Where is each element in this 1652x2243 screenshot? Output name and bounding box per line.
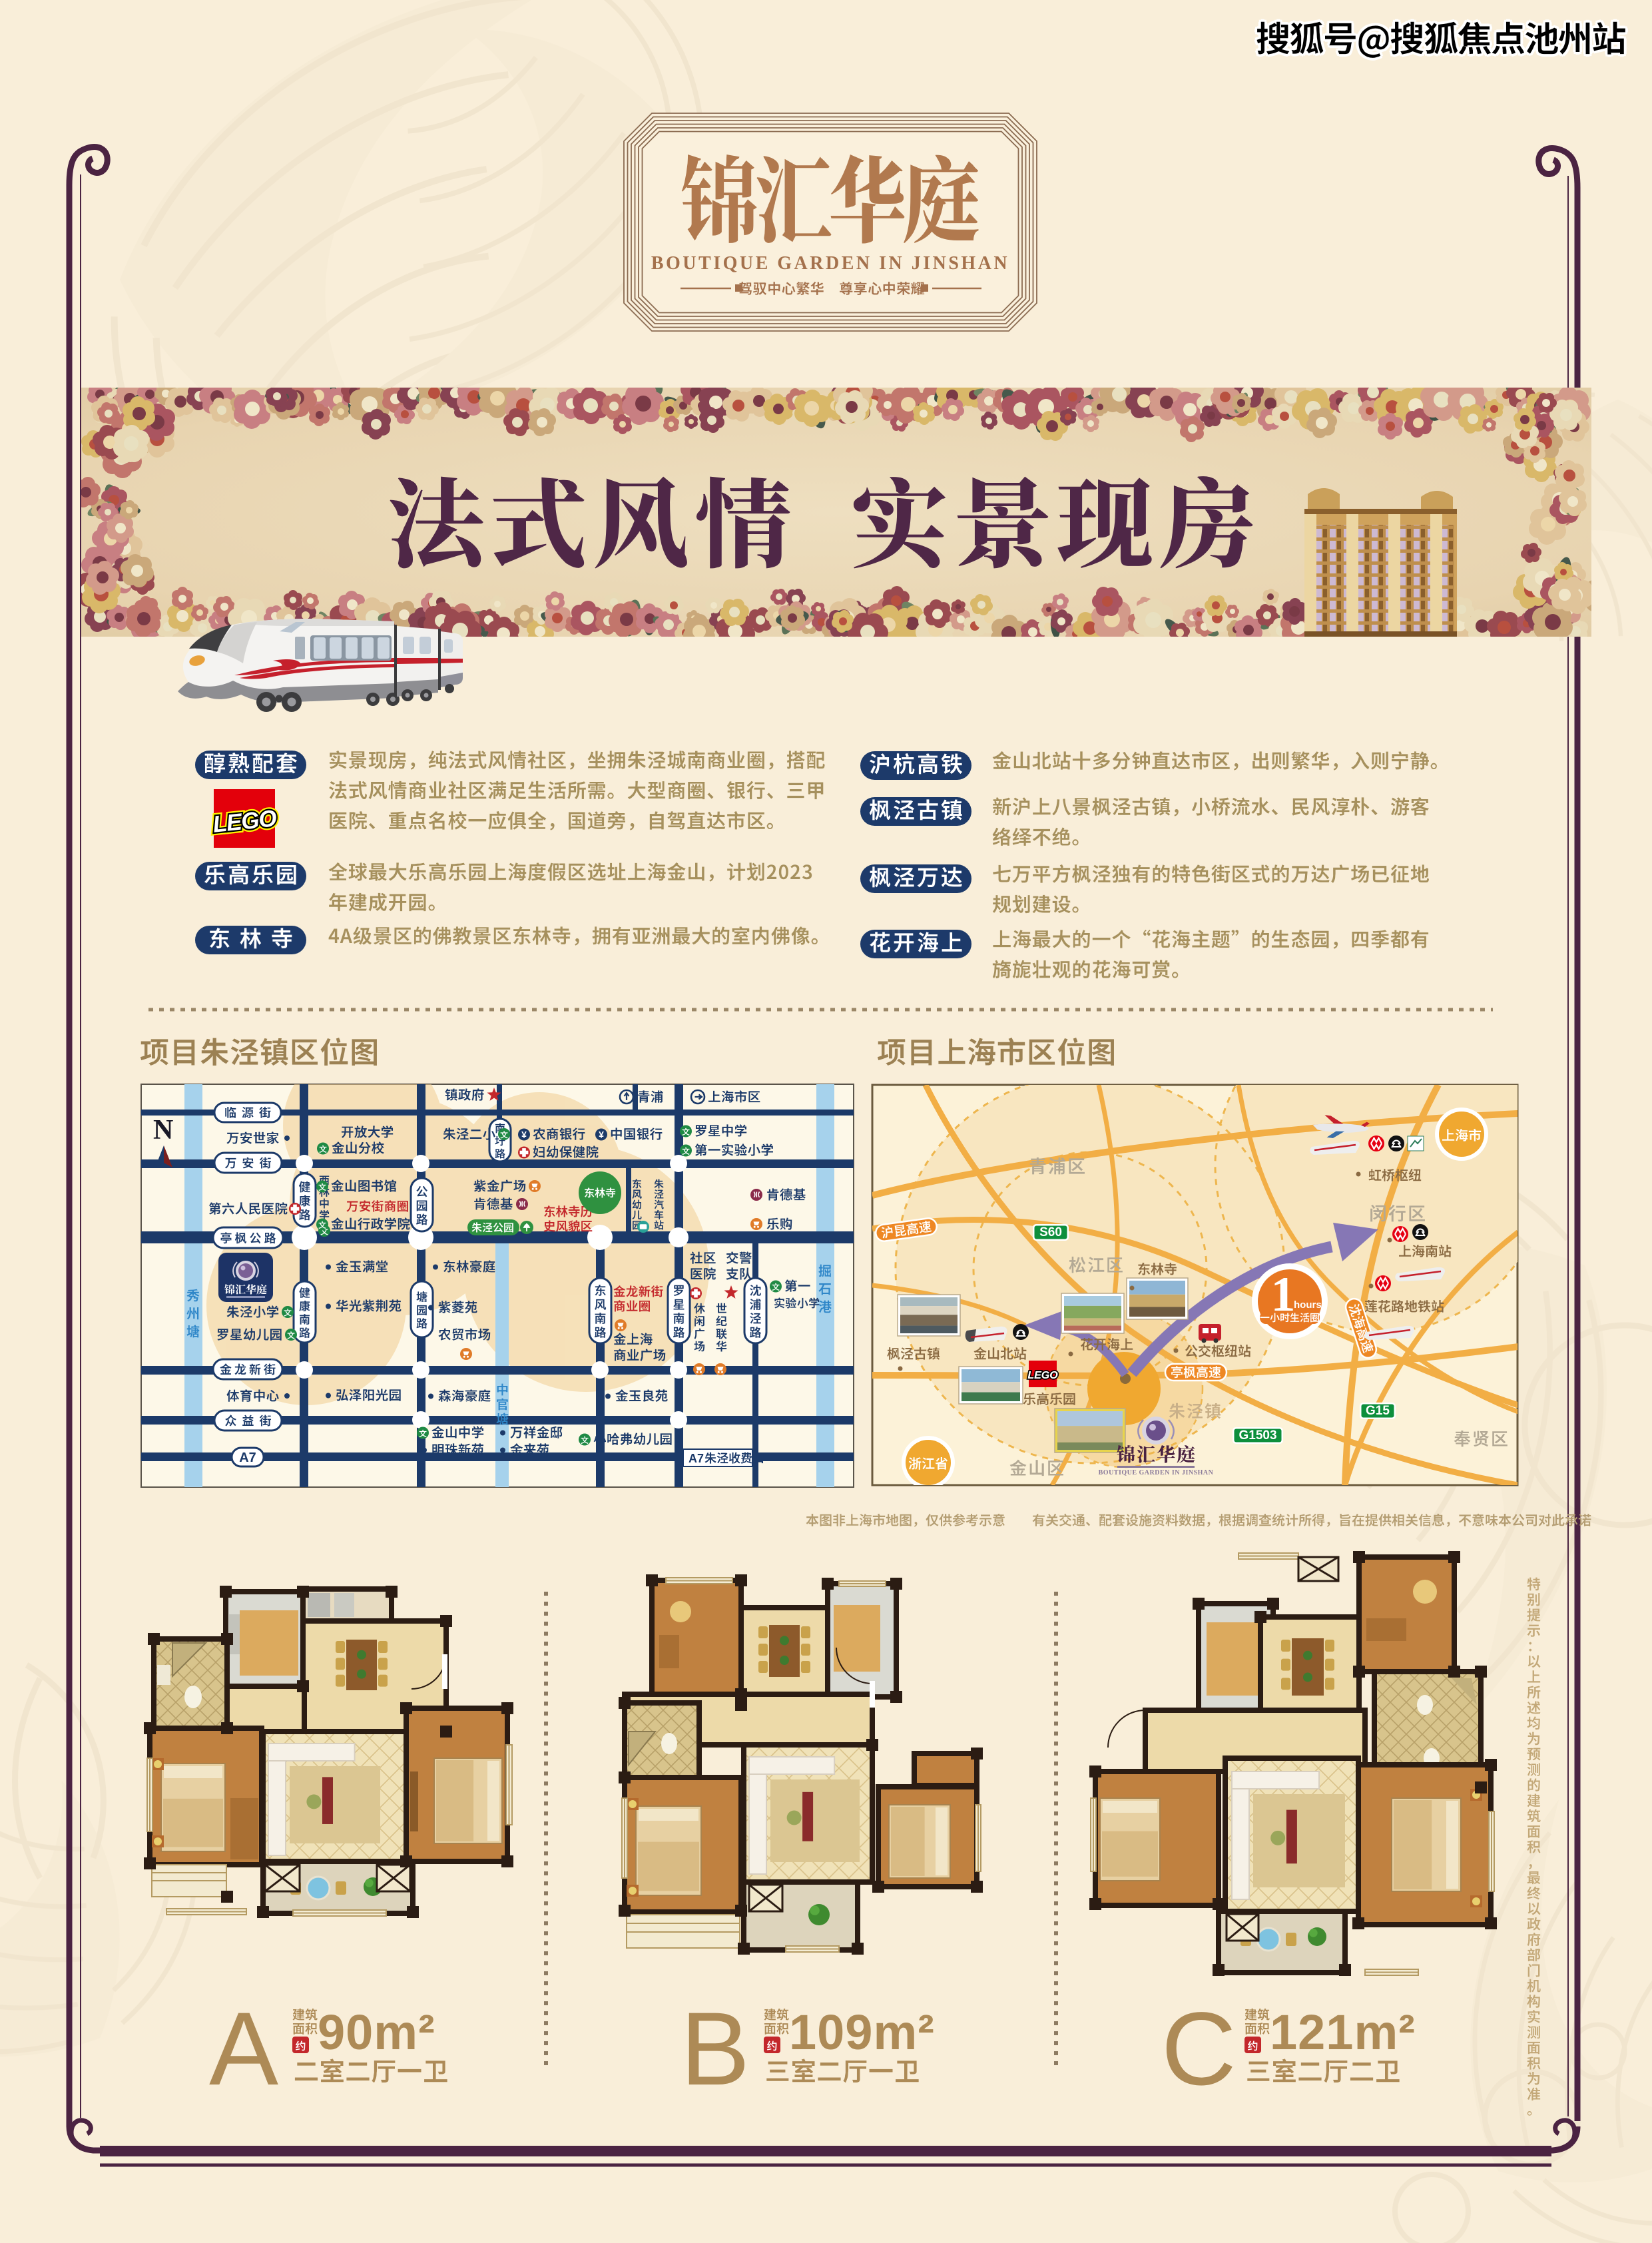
svg-text:A: A xyxy=(209,1991,278,2107)
svg-text:C: C xyxy=(1161,1991,1237,2107)
svg-text:B: B xyxy=(681,1991,750,2107)
svg-text:S60: S60 xyxy=(1039,1225,1062,1239)
svg-text:90m²: 90m² xyxy=(318,2005,435,2060)
svg-text:BOUTIQUE GARDEN IN JINSHAN: BOUTIQUE GARDEN IN JINSHAN xyxy=(1099,1469,1214,1476)
svg-text:¥: ¥ xyxy=(599,1129,604,1140)
svg-text:109m²: 109m² xyxy=(789,2005,935,2060)
svg-text:G1503: G1503 xyxy=(1239,1429,1276,1442)
svg-text:LEGO: LEGO xyxy=(1027,1370,1058,1381)
svg-text:G15: G15 xyxy=(1366,1404,1390,1418)
svg-text:N: N xyxy=(153,1115,173,1145)
svg-text:A7: A7 xyxy=(239,1450,256,1465)
svg-text:A7: A7 xyxy=(688,1452,704,1465)
svg-text:hours: hours xyxy=(1294,1299,1322,1311)
svg-text:121m²: 121m² xyxy=(1270,2005,1416,2060)
svg-text:BOUTIQUE GARDEN IN JINSHAN: BOUTIQUE GARDEN IN JINSHAN xyxy=(651,253,1009,274)
svg-text:¥: ¥ xyxy=(521,1129,527,1140)
